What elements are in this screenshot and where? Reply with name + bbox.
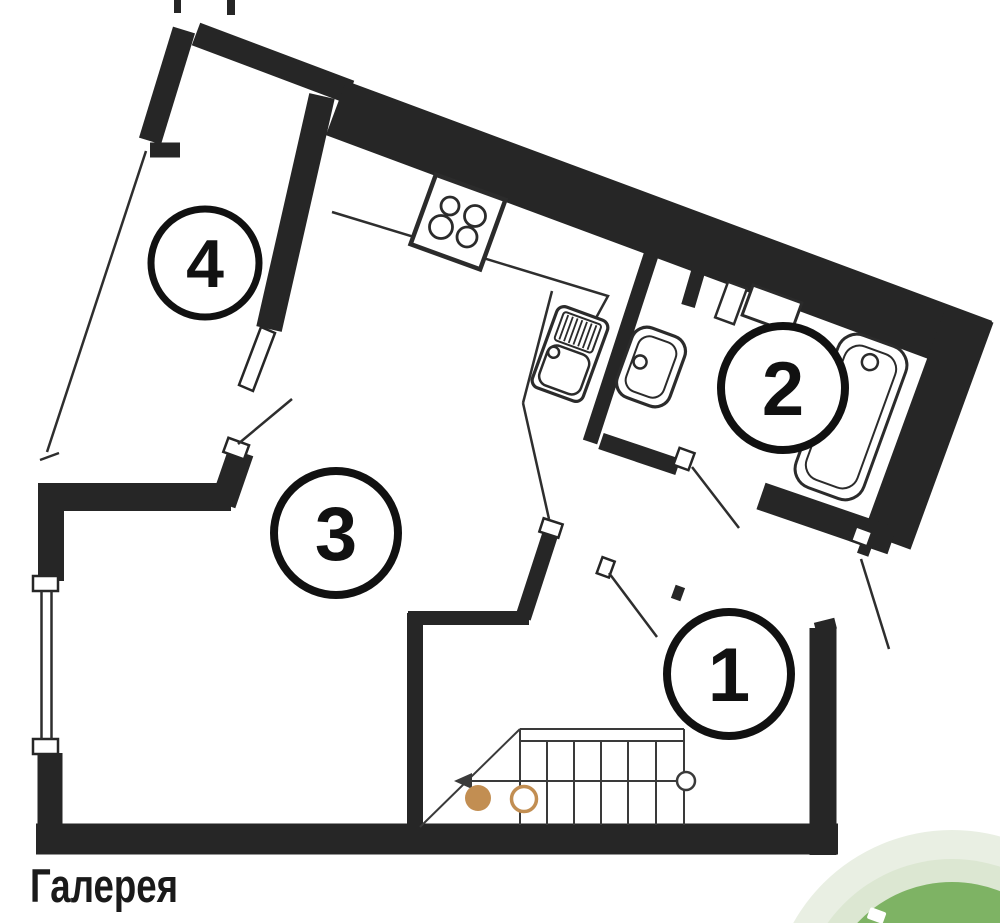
- column-marker-filled: [465, 785, 491, 811]
- wall-door-stub: [223, 452, 241, 504]
- cabinet: [715, 282, 747, 325]
- window-jamb: [33, 739, 58, 754]
- walk-line-start-circle: [677, 772, 695, 790]
- plan-caption: Галерея: [30, 858, 178, 913]
- window: [33, 576, 58, 754]
- door-swing-line: [609, 573, 657, 637]
- room-number: 4: [186, 226, 224, 302]
- cropped-text-remnant: [174, 0, 235, 15]
- staircase: [420, 729, 695, 827]
- wall-room4-kitchen: [269, 96, 322, 329]
- room-label-3: 3: [274, 471, 398, 595]
- room-label-2: 2: [721, 326, 845, 450]
- door-hinge-jamb: [673, 448, 694, 470]
- door-swing-line: [692, 467, 739, 528]
- column-markers: [465, 785, 537, 812]
- column-marker-outline: [512, 787, 537, 812]
- room-label-1: 1: [667, 612, 791, 736]
- cropped-letter-mark: [174, 0, 181, 13]
- cropped-letter-mark: [227, 0, 235, 15]
- door-swing-line: [523, 403, 549, 519]
- wall-top-room4: [196, 34, 350, 92]
- room-number: 1: [708, 633, 750, 718]
- floor-plan-drawing: 4 3 2 1: [0, 0, 1000, 923]
- room-label-4: 4: [151, 209, 259, 317]
- walk-line-arrow: [454, 773, 472, 789]
- door-strike-jamb: [671, 585, 685, 602]
- door-hinge-jamb: [597, 557, 615, 577]
- floor-plan-page: 4 3 2 1 Галерея: [0, 0, 1000, 923]
- wall-bathroom-stub: [688, 272, 698, 306]
- wall-corridor-bottom: [601, 441, 678, 467]
- boundary-line-left: [47, 151, 146, 452]
- door-swing-line: [238, 399, 292, 444]
- door-swing-line: [861, 559, 889, 649]
- boundary-tick: [40, 453, 59, 460]
- wall-room3-room1-diagonal: [523, 535, 550, 618]
- sink-outline: [530, 304, 610, 403]
- window-jamb: [33, 576, 58, 591]
- kitchen-sink-icon: [530, 304, 610, 403]
- door-leaf-room4: [239, 327, 275, 391]
- room-number: 2: [762, 347, 804, 432]
- wall-left-room4: [150, 30, 184, 141]
- room-number: 3: [315, 492, 357, 577]
